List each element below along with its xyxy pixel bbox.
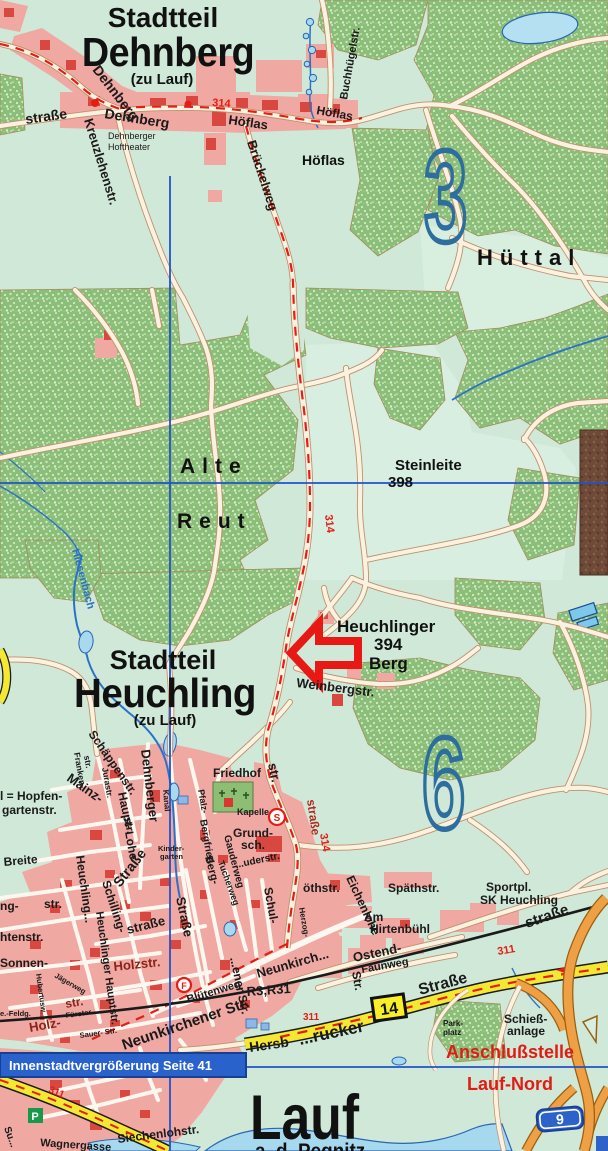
svg-text:Kapelle: Kapelle [237,807,269,817]
svg-text:394: 394 [374,635,403,654]
svg-text:Lauf-Nord: Lauf-Nord [467,1074,553,1094]
svg-text:Späthstr.: Späthstr. [388,881,439,895]
svg-text:anlage: anlage [507,1024,545,1038]
svg-text:3: 3 [424,123,467,269]
svg-text:R3,R31: R3,R31 [246,981,291,999]
svg-text:Hirtenbühl: Hirtenbühl [370,922,430,936]
svg-text:Sportpl.: Sportpl. [486,880,531,894]
svg-text:398: 398 [388,474,413,491]
svg-text:Berg: Berg [369,654,408,673]
svg-text:Park-: Park- [443,1019,463,1028]
svg-text:Höflas: Höflas [302,152,345,168]
svg-text:Alte: Alte [180,455,248,478]
svg-text:314: 314 [322,514,336,535]
svg-text:311: 311 [303,1012,320,1023]
svg-text:6: 6 [422,710,465,856]
svg-text:S: S [274,813,281,824]
svg-text:l = Hopfen-: l = Hopfen- [0,789,62,803]
svg-text:Heuchling: Heuchling [74,671,256,716]
svg-text:Hoftheater: Hoftheater [108,142,150,152]
svg-text:Breite: Breite [3,852,38,869]
svg-text:(zu Lauf): (zu Lauf) [134,712,196,729]
svg-text:Sonnen-: Sonnen- [0,956,48,970]
svg-text:9: 9 [555,1111,564,1128]
svg-text:14: 14 [379,1000,399,1019]
svg-text:e.-Feldg.: e.-Feldg. [0,1009,31,1018]
svg-text:sch.: sch. [241,838,265,852]
svg-text:gartenstr.: gartenstr. [2,803,57,817]
svg-text:garten: garten [160,852,183,861]
svg-text:platz: platz [443,1028,461,1037]
svg-text:a. d. Pegnitz: a. d. Pegnitz [255,1140,365,1151]
svg-text:P: P [31,1111,38,1123]
svg-text:SK Heuchling: SK Heuchling [480,893,558,907]
svg-text:Friedhof: Friedhof [213,766,262,780]
svg-text:Steinleite: Steinleite [395,457,462,474]
svg-text:Heuchlinger: Heuchlinger [337,617,436,636]
svg-text:htenstr.: htenstr. [0,930,43,944]
svg-text:str.: str. [44,897,62,911]
svg-text:öthstr.: öthstr. [303,881,340,895]
svg-text:Anschlußstelle: Anschlußstelle [446,1042,574,1062]
svg-text:314: 314 [212,97,232,110]
svg-text:Kanal: Kanal [161,789,172,811]
svg-text:(zu Lauf): (zu Lauf) [131,71,193,88]
svg-text:Hüttal: Hüttal [477,245,581,270]
svg-text:Innenstadtvergrößerung Seite 4: Innenstadtvergrößerung Seite 41 [9,1058,212,1073]
svg-text:Reut: Reut [177,510,252,533]
svg-text:Dehnberger: Dehnberger [108,131,156,141]
svg-text:Stadtteil: Stadtteil [108,2,218,33]
svg-text:ng-: ng- [0,899,19,913]
svg-text:F: F [181,981,187,991]
